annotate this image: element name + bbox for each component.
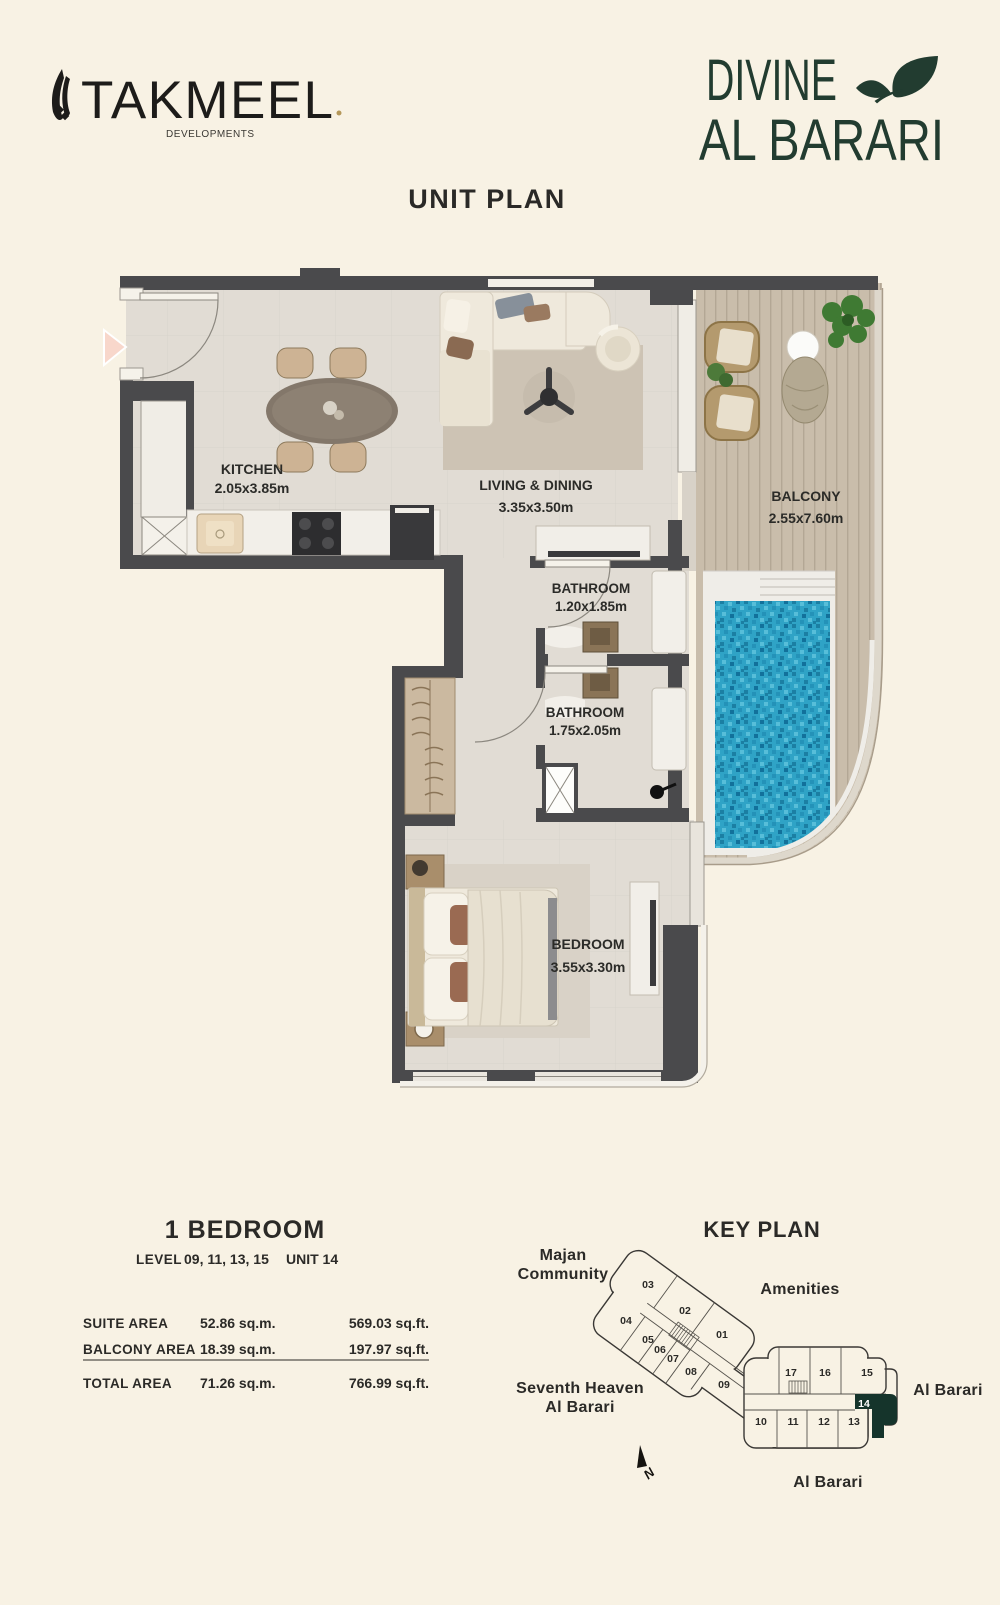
svg-text:17: 17 — [785, 1367, 797, 1379]
svg-text:05: 05 — [642, 1334, 654, 1346]
svg-text:KITCHEN: KITCHEN — [221, 461, 283, 477]
svg-text:BATHROOM: BATHROOM — [552, 581, 631, 596]
svg-text:SUITE AREA: SUITE AREA — [83, 1316, 168, 1331]
svg-text:09, 11, 13, 15: 09, 11, 13, 15 — [184, 1251, 269, 1267]
svg-text:Community: Community — [518, 1266, 609, 1283]
svg-text:AL BARARI: AL BARARI — [699, 108, 944, 173]
svg-text:Al Barari: Al Barari — [793, 1474, 862, 1491]
svg-text:12: 12 — [818, 1416, 830, 1428]
svg-text:52.86 sq.m.: 52.86 sq.m. — [200, 1315, 276, 1331]
svg-text:1 BEDROOM: 1 BEDROOM — [165, 1216, 325, 1244]
svg-text:1.20x1.85m: 1.20x1.85m — [555, 599, 627, 614]
svg-text:BATHROOM: BATHROOM — [546, 705, 625, 720]
svg-text:2.55x7.60m: 2.55x7.60m — [769, 510, 844, 526]
svg-text:569.03 sq.ft.: 569.03 sq.ft. — [349, 1315, 429, 1331]
svg-text:3.35x3.50m: 3.35x3.50m — [499, 499, 574, 515]
svg-text:Amenities: Amenities — [760, 1281, 839, 1298]
svg-text:09: 09 — [718, 1379, 730, 1391]
svg-text:11: 11 — [787, 1416, 798, 1428]
svg-text:07: 07 — [667, 1353, 679, 1365]
svg-text:1.75x2.05m: 1.75x2.05m — [549, 723, 621, 738]
svg-text:08: 08 — [685, 1366, 697, 1378]
svg-text:TAKMEEL: TAKMEEL — [81, 71, 333, 130]
svg-text:TOTAL AREA: TOTAL AREA — [83, 1376, 172, 1391]
svg-text:18.39 sq.m.: 18.39 sq.m. — [200, 1341, 276, 1357]
svg-text:3.55x3.30m: 3.55x3.30m — [551, 959, 626, 975]
svg-text:10: 10 — [755, 1416, 767, 1428]
svg-text:Majan: Majan — [540, 1247, 587, 1264]
svg-text:13: 13 — [848, 1416, 860, 1428]
svg-text:04: 04 — [620, 1315, 632, 1327]
svg-text:03: 03 — [642, 1279, 654, 1291]
svg-text:14: 14 — [858, 1398, 870, 1410]
svg-text:197.97 sq.ft.: 197.97 sq.ft. — [349, 1341, 429, 1357]
svg-text:2.05x3.85m: 2.05x3.85m — [215, 480, 290, 496]
svg-text:LIVING & DINING: LIVING & DINING — [479, 477, 593, 493]
svg-text:15: 15 — [861, 1367, 873, 1379]
svg-text:02: 02 — [679, 1305, 691, 1317]
svg-text:16: 16 — [819, 1367, 831, 1379]
svg-text:BALCONY: BALCONY — [771, 488, 841, 504]
svg-text:Al Barari: Al Barari — [913, 1382, 982, 1399]
svg-text:DIVINE: DIVINE — [706, 48, 837, 113]
svg-text:KEY PLAN: KEY PLAN — [703, 1217, 820, 1242]
svg-text:BALCONY AREA: BALCONY AREA — [83, 1342, 196, 1357]
svg-text:UNIT PLAN: UNIT PLAN — [408, 184, 566, 214]
svg-text:766.99 sq.ft.: 766.99 sq.ft. — [349, 1375, 429, 1391]
svg-text:LEVEL: LEVEL — [136, 1252, 182, 1267]
svg-text:01: 01 — [716, 1329, 728, 1341]
svg-text:BEDROOM: BEDROOM — [551, 936, 624, 952]
svg-text:DEVELOPMENTS: DEVELOPMENTS — [166, 129, 254, 140]
svg-text:06: 06 — [654, 1344, 666, 1356]
svg-text:Al Barari: Al Barari — [545, 1399, 614, 1416]
svg-text:UNIT 14: UNIT 14 — [286, 1251, 338, 1267]
svg-text:Seventh Heaven: Seventh Heaven — [516, 1380, 644, 1397]
svg-text:71.26 sq.m.: 71.26 sq.m. — [200, 1375, 276, 1391]
